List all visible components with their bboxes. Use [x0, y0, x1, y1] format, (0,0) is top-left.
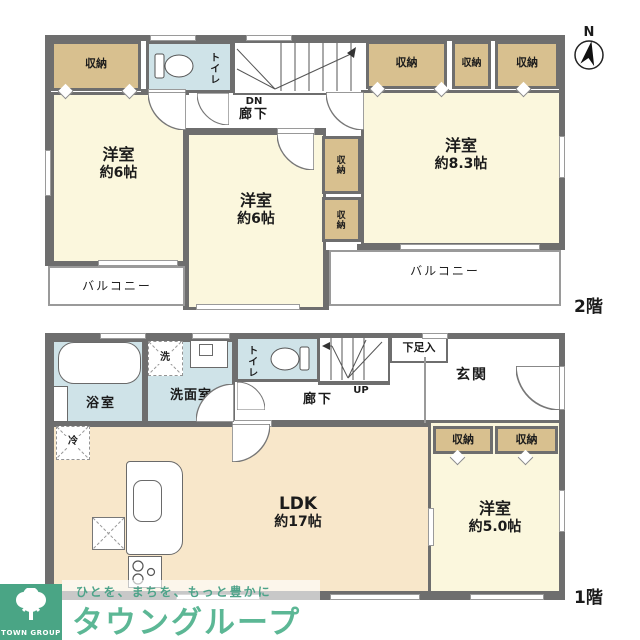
floor1-label: 1階 — [574, 583, 603, 608]
closet-label: 収納 — [498, 57, 556, 70]
window — [98, 260, 178, 266]
window — [196, 304, 300, 310]
stairs-direction-label: UP — [346, 385, 376, 397]
window — [100, 333, 146, 339]
toilet-icon — [268, 344, 310, 374]
closet-label: 収納 — [334, 142, 345, 188]
window — [192, 333, 230, 339]
window — [150, 35, 196, 41]
stairs-icon — [235, 43, 366, 91]
room-size: 約6帖 — [191, 211, 321, 228]
balcony-label: バルコニー — [58, 279, 176, 293]
window — [246, 35, 292, 41]
washer-label: 洗 — [152, 352, 178, 364]
compass-needle-icon — [573, 39, 605, 71]
entrance-label: 玄関 — [448, 367, 496, 384]
staircase-1f — [318, 336, 390, 383]
room-size: 約6帖 — [61, 165, 176, 182]
logo-brand: タウングループ — [72, 597, 301, 640]
stairs-icon — [320, 338, 386, 380]
kitchen-table-icon — [92, 517, 125, 550]
window — [559, 136, 565, 178]
room-size: 約17帖 — [238, 514, 358, 531]
door-arc — [237, 382, 265, 410]
room-size: 約5.0帖 — [430, 519, 560, 536]
door-arc — [277, 133, 314, 170]
hallway-label-2f: 廊下 — [226, 107, 282, 122]
bathtub-icon — [58, 342, 141, 384]
floorplan-canvas: N バルコニー バルコニー 収納 トイレ — [0, 0, 640, 640]
door-arc — [326, 92, 364, 130]
staircase-2f — [233, 41, 370, 95]
window — [470, 594, 544, 600]
room-label: LDK 約17帖 — [238, 494, 358, 531]
room-name: 洋室 — [391, 137, 531, 156]
room-label: 洋室 約6帖 — [61, 146, 176, 181]
window — [400, 244, 540, 250]
logo-square: TOWN GROUP — [0, 584, 62, 640]
closet-label: 収納 — [334, 199, 345, 241]
vanity-icon — [53, 386, 68, 422]
window — [428, 508, 434, 546]
logo-org-label: TOWN GROUP — [0, 629, 62, 637]
entrance-step-line — [424, 357, 426, 423]
room-name: 洋室 — [191, 192, 321, 211]
floor2-label: 2階 — [574, 292, 603, 317]
toilet-label: トイレ — [207, 46, 219, 90]
window — [422, 333, 448, 339]
room-size: 約8.3帖 — [391, 156, 531, 173]
room-label: 洋室 約5.0帖 — [430, 500, 560, 535]
door-arc — [197, 93, 229, 125]
room-label: 洋室 約6帖 — [191, 192, 321, 227]
window — [330, 594, 420, 600]
door-arc — [232, 424, 270, 462]
door-arc — [148, 92, 186, 130]
closet-label: 収納 — [370, 57, 443, 70]
room-name: 洋室 — [61, 146, 176, 165]
tree-icon — [13, 588, 49, 622]
closet-label: 収納 — [435, 434, 491, 447]
toilet-label: トイレ — [245, 341, 257, 381]
door-arc — [196, 384, 234, 422]
room-name: LDK — [238, 494, 358, 514]
kitchen-sink-icon — [133, 480, 162, 522]
balcony-label: バルコニー — [380, 264, 510, 278]
toilet-icon — [154, 50, 196, 82]
closet-label: 収納 — [498, 434, 555, 447]
closet-label: 収納 — [56, 58, 136, 71]
shoe-cabinet-label: 下足入 — [392, 342, 446, 355]
room-label: 洋室 約8.3帖 — [391, 137, 531, 172]
closet-label: 収納 — [452, 58, 491, 70]
fridge-label: 冷 — [60, 436, 86, 448]
sink-basin-icon — [199, 344, 213, 356]
window — [559, 490, 565, 532]
hallway-label-1f: 廊下 — [292, 392, 344, 407]
bathroom-label: 浴室 — [72, 396, 130, 411]
window — [45, 150, 51, 196]
room-name: 洋室 — [430, 500, 560, 519]
entrance-door-arc — [516, 366, 560, 410]
